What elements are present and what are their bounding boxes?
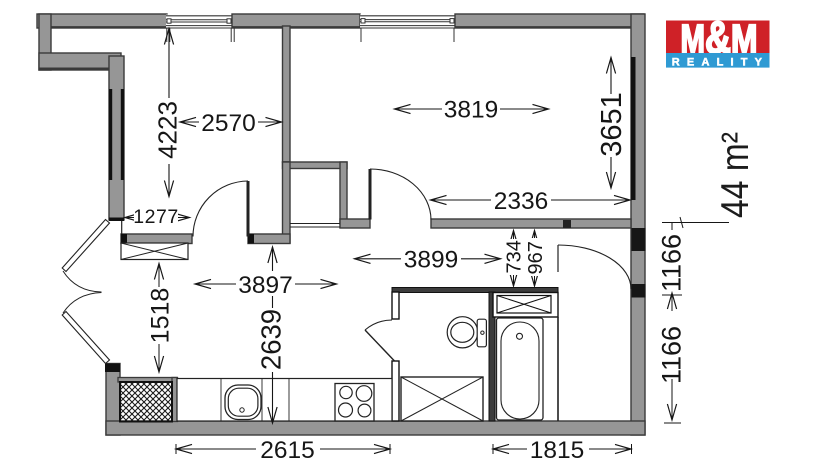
svg-text:3819: 3819: [444, 97, 499, 124]
svg-text:2336: 2336: [494, 188, 549, 215]
svg-text:1815: 1815: [530, 437, 585, 464]
svg-text:4223: 4223: [153, 101, 183, 159]
svg-text:967: 967: [525, 241, 547, 274]
svg-text:REALITY: REALITY: [672, 56, 769, 68]
svg-text:734: 734: [504, 240, 526, 273]
svg-text:3651: 3651: [596, 92, 628, 157]
svg-text:2615: 2615: [260, 437, 315, 464]
svg-text:1166: 1166: [657, 234, 687, 292]
svg-text:2570: 2570: [201, 110, 256, 137]
svg-text:44 m²: 44 m²: [714, 132, 757, 218]
svg-text:2639: 2639: [256, 309, 287, 370]
svg-text:1166: 1166: [657, 326, 687, 384]
svg-text:1518: 1518: [147, 288, 175, 344]
svg-text:3897: 3897: [238, 272, 293, 299]
svg-text:1277: 1277: [133, 206, 178, 228]
svg-text:3899: 3899: [404, 247, 459, 274]
